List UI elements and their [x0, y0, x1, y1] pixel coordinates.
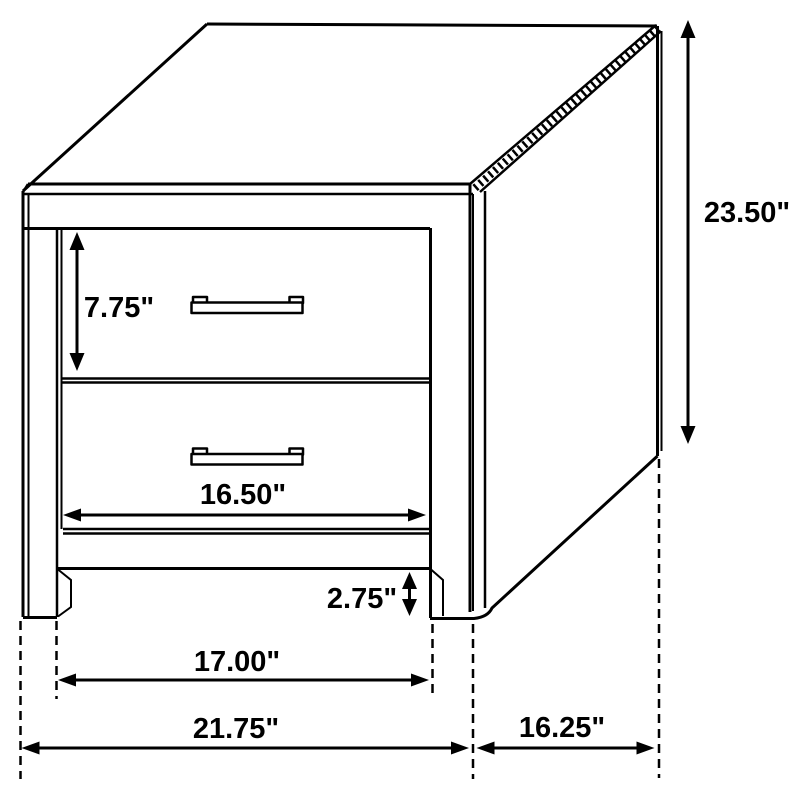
- dim-label-inner-width: 17.00": [194, 646, 280, 678]
- arrowhead-up-icon: [70, 232, 85, 250]
- arrowhead-left-icon: [22, 742, 40, 755]
- dimension-overall-width: 21.75": [22, 713, 470, 755]
- dim-label-drawer-width: 16.50": [200, 479, 286, 511]
- dim-label-toe-kick-height: 2.75": [327, 583, 397, 615]
- arrowhead-right-icon: [451, 742, 469, 755]
- dimension-drawer-width: 16.50": [63, 479, 426, 522]
- dimension-inner-width: 17.00": [58, 646, 429, 687]
- arrowhead-right-icon: [411, 674, 429, 687]
- arrowhead-down-icon: [70, 353, 85, 371]
- front-frame: [23, 184, 473, 618]
- arrowhead-right-icon: [408, 509, 426, 522]
- arrowhead-left-icon: [63, 509, 81, 522]
- arrowhead-right-icon: [637, 742, 655, 755]
- dimension-depth: 16.25": [477, 712, 655, 755]
- dimension-toe-kick-height: 2.75": [327, 572, 417, 616]
- arrowhead-up-icon: [681, 20, 696, 38]
- dimension-drawer-height: 7.75": [70, 232, 155, 371]
- top-panel: [23, 24, 661, 194]
- dim-label-drawer-height: 7.75": [84, 292, 154, 324]
- arrowhead-down-icon: [681, 426, 696, 444]
- dim-label-overall-width: 21.75": [193, 713, 279, 745]
- dim-label-depth: 16.25": [519, 712, 605, 744]
- arrowhead-left-icon: [477, 742, 495, 755]
- dim-label-overall-height: 23.50": [704, 197, 790, 229]
- arrowhead-up-icon: [402, 572, 417, 589]
- nightstand-dimension-diagram: 7.75" 16.50" 2.75" 17.00" 21.75" 16.25": [0, 0, 800, 800]
- side-panel: [485, 26, 662, 608]
- arrowhead-down-icon: [402, 599, 417, 616]
- drawer-1-handle: [192, 297, 304, 313]
- diagram-canvas: 7.75" 16.50" 2.75" 17.00" 21.75" 16.25": [0, 0, 800, 800]
- arrowhead-left-icon: [58, 674, 76, 687]
- top-edge-hatched-band: [470, 25, 661, 192]
- drawer-2-handle: [192, 449, 304, 465]
- dimension-overall-height: 23.50": [681, 20, 791, 444]
